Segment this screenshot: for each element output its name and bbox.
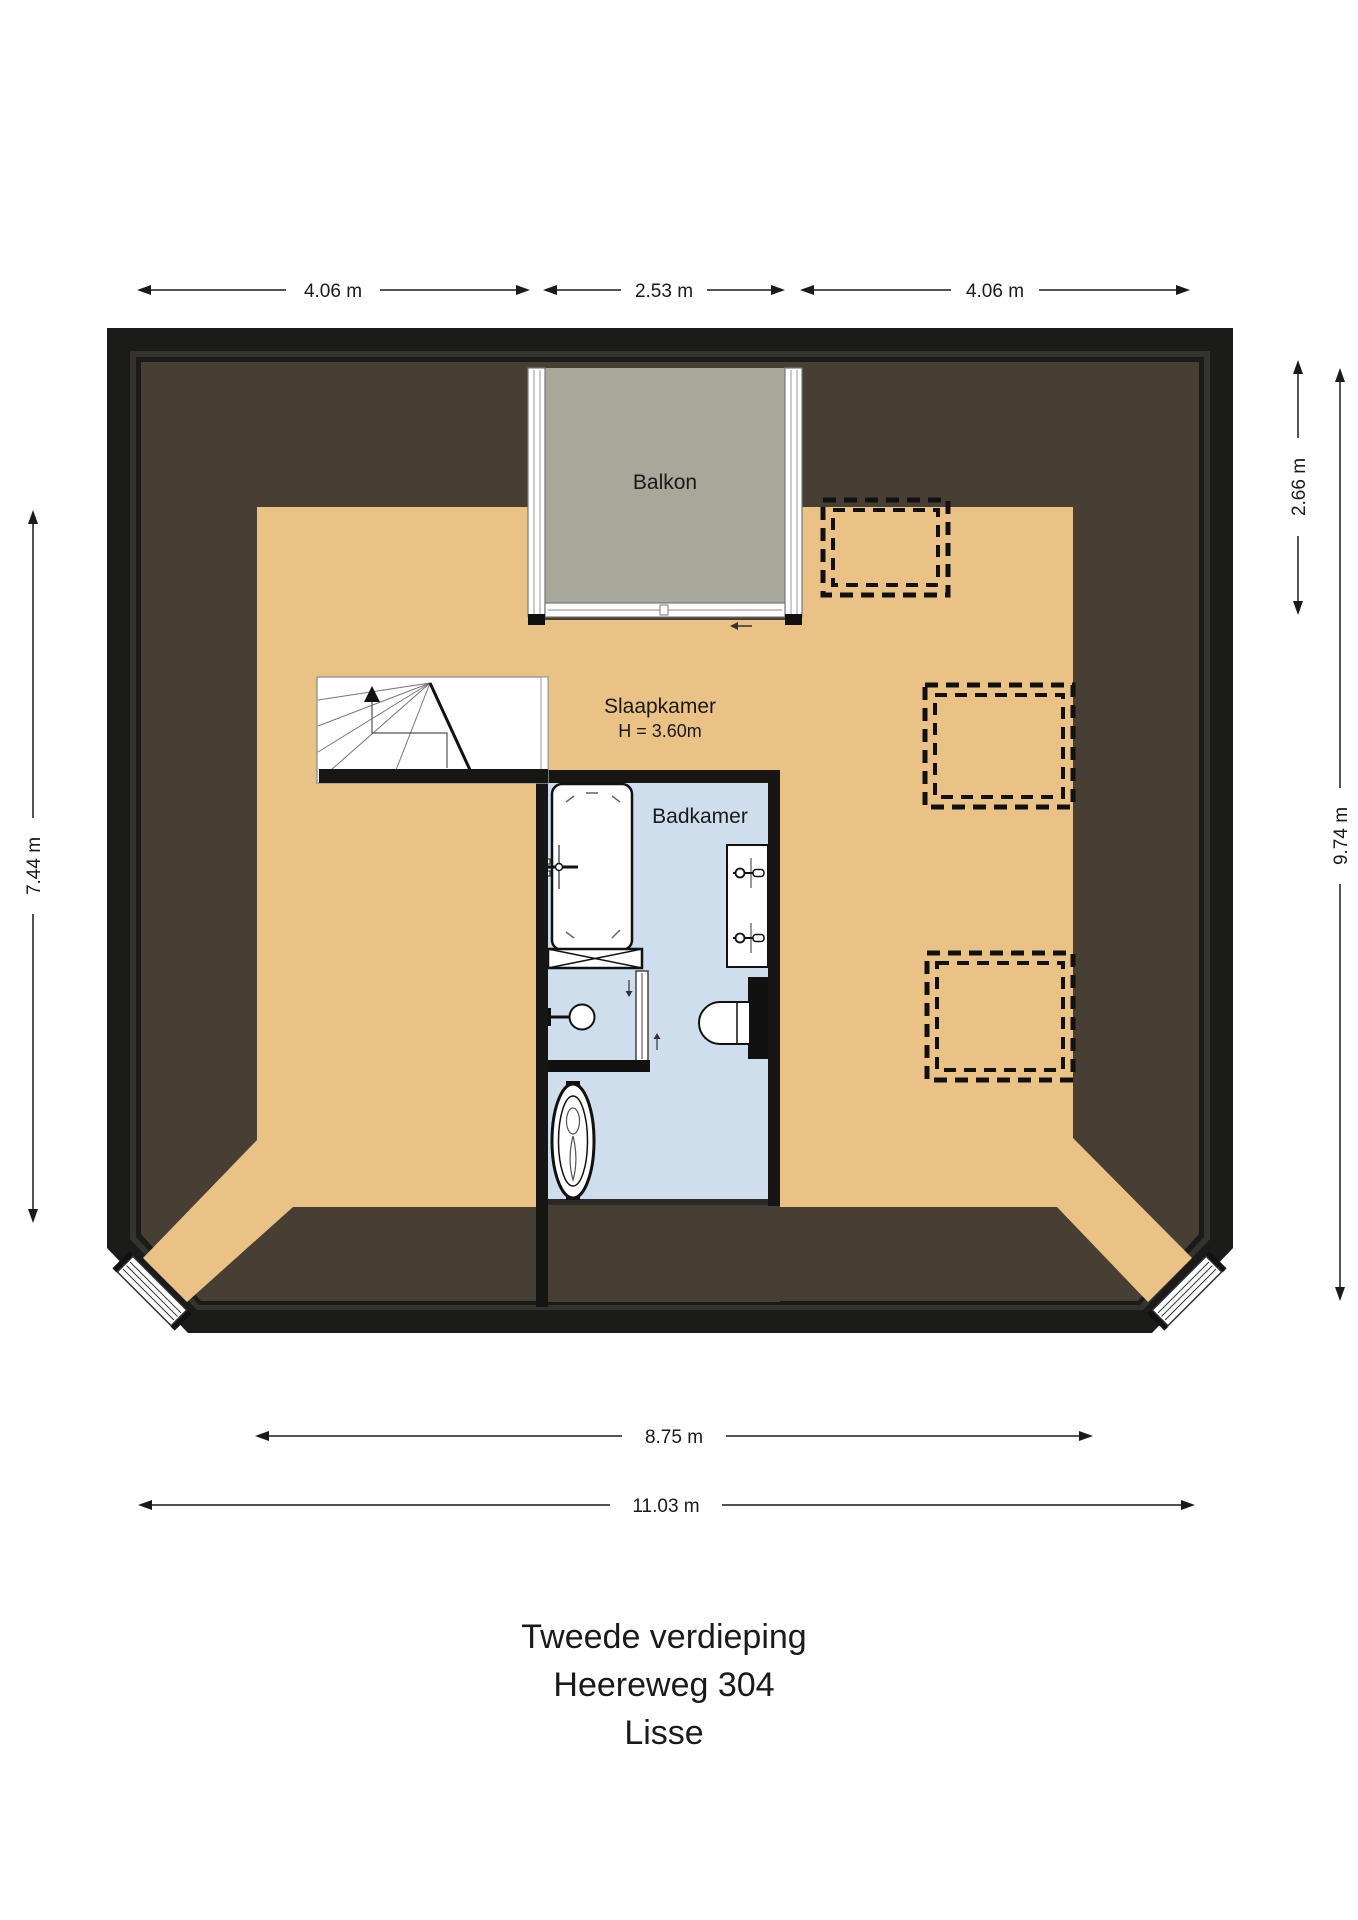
dim-top-left-label: 4.06 m [304,281,362,302]
balcony-door-cap-right [785,614,802,625]
bathroom-bottom-wall [548,1199,770,1205]
stair-rail [541,677,548,770]
dim-bottom-outer-label: 11.03 m [632,1496,699,1517]
dim-bottom-inner-label: 8.75 m [645,1427,703,1448]
bathroom-label: Badkamer [652,805,748,828]
dim-arrow-icon [28,1209,38,1223]
dim-arrow-icon [1079,1431,1093,1441]
bathroom [542,782,774,1205]
balcony-window-right [785,368,802,616]
dim-arrow-icon [1181,1500,1195,1510]
bathroom-right-wall [768,782,780,1206]
roof-slope-below-bathroom [538,1200,780,1302]
dim-arrow-icon [1335,368,1345,382]
title-address: Heereweg 304 [553,1666,774,1704]
dim-arrow-icon [1176,285,1190,295]
dim-arrow-icon [138,1500,152,1510]
dim-arrow-icon [543,285,557,295]
stair-bottom-wall [319,769,548,783]
balcony-door-cap-left [528,614,545,625]
dim-arrow-icon [137,285,151,295]
floor-plan-svg: Balkon Slaapkamer H = 3.60m Badkamer [0,0,1358,1920]
balcony-window-left [528,368,545,616]
dim-right-upper-label: 2.66 m [1289,458,1310,516]
floor-plan-page: Balkon Slaapkamer H = 3.60m Badkamer [0,0,1358,1920]
bedroom-label: Slaapkamer [604,695,716,718]
dim-arrow-icon [28,510,38,524]
dim-arrow-icon [1293,601,1303,615]
dim-left-label: 7.44 m [24,837,45,895]
balcony-label: Balkon [633,471,697,494]
bedroom-height-label: H = 3.60m [618,721,702,741]
staircase [317,677,548,783]
title-block: Tweede verdieping Heereweg 304 Lisse [521,1618,806,1752]
dim-top-center-label: 2.53 m [635,281,693,302]
stair-well [317,677,548,783]
dim-arrow-icon [1335,1287,1345,1301]
dim-arrow-icon [1293,360,1303,374]
radiator [548,949,642,968]
dim-top-right-label: 4.06 m [966,281,1024,302]
balcony [528,368,802,630]
dim-arrow-icon [516,285,530,295]
towel-radiator [552,1081,594,1200]
dim-arrow-icon [255,1431,269,1441]
title-floor: Tweede verdieping [521,1618,806,1656]
dim-arrow-icon [771,285,785,295]
title-city: Lisse [624,1714,703,1752]
dim-right-full-label: 9.74 m [1331,807,1352,865]
vanity [727,845,768,967]
toilet [699,1002,750,1044]
bathtub [542,784,632,950]
shower-wall [548,1060,650,1072]
bathroom-left-wall [536,772,548,1307]
dim-arrow-icon [800,285,814,295]
balcony-sliding-door-handle [660,605,668,615]
